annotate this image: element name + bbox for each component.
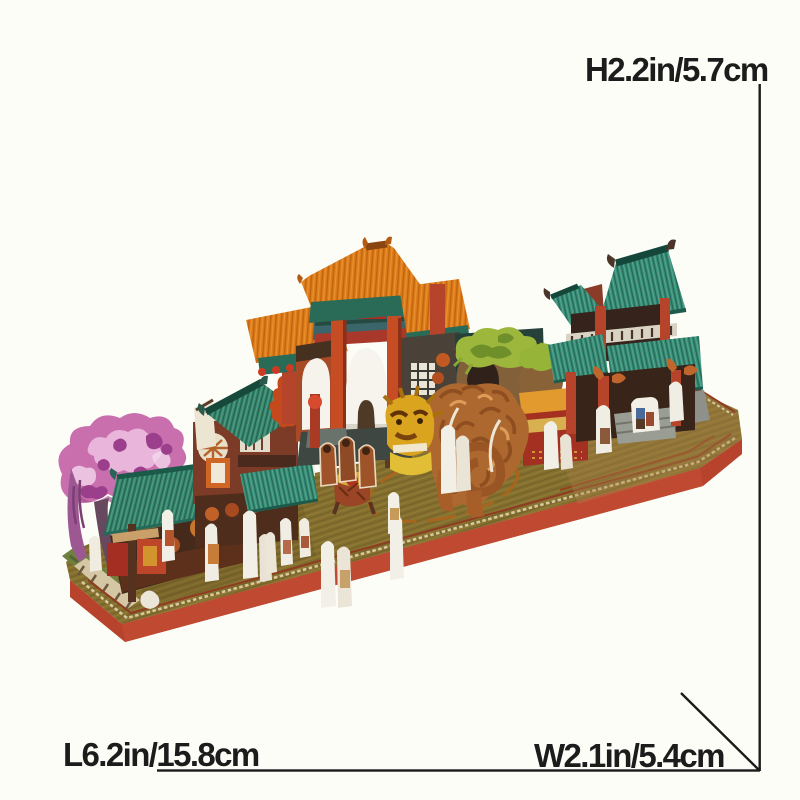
svg-text:L6.2in/15.8cm: L6.2in/15.8cm: [63, 736, 259, 773]
svg-text:H2.2in/5.7cm: H2.2in/5.7cm: [585, 51, 768, 88]
svg-text:W2.1in/5.4cm: W2.1in/5.4cm: [534, 737, 724, 774]
